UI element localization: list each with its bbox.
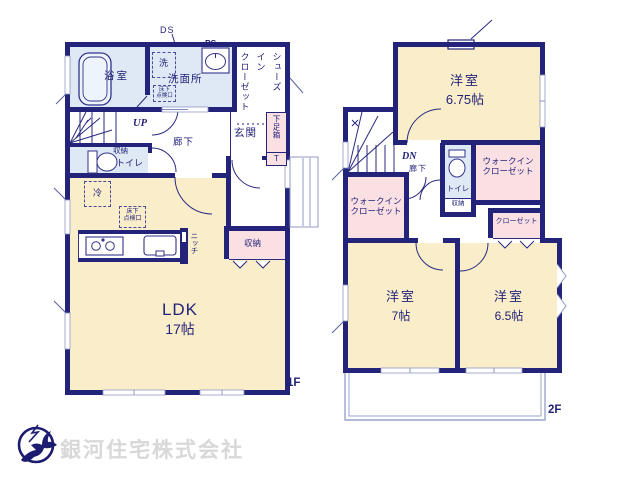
entrance-label: 玄関 bbox=[234, 127, 257, 139]
bedroom-675-label: 洋室 6.75帖 bbox=[425, 72, 505, 110]
corridor-1f-label: 廊下 bbox=[173, 137, 194, 148]
ds-label: DS bbox=[160, 25, 175, 36]
up-label: UP bbox=[133, 118, 147, 130]
wic-left-label: ウォークインクローゼット bbox=[346, 196, 406, 216]
closet-label: クローゼット bbox=[493, 218, 540, 226]
floor1-label: 1F bbox=[287, 377, 300, 391]
niche-label: ニッチ bbox=[189, 232, 198, 255]
fridge-label: 冷 bbox=[93, 188, 102, 199]
hall-storage-label: 収納 bbox=[244, 238, 261, 248]
stairs-1f bbox=[70, 112, 116, 143]
bedroom-65-label: 洋室 6.5帖 bbox=[478, 288, 540, 326]
bedroom-7-label: 洋室 7帖 bbox=[370, 288, 432, 326]
shoe-box: 下足箱 T bbox=[266, 112, 287, 166]
toilet-1f-label: トイレ bbox=[116, 158, 143, 169]
toilet-1f-icon bbox=[88, 151, 97, 173]
room-ldk bbox=[70, 178, 226, 390]
toilet-2f-icon bbox=[449, 150, 465, 157]
toilet-storage-label: 収納 bbox=[113, 147, 128, 156]
washer-label: 洗 bbox=[159, 58, 168, 69]
hatch-label-washroom: 床下点検口 bbox=[154, 87, 175, 100]
wic-right-label: ウォークインクローゼット bbox=[477, 156, 539, 176]
floor-plan-drawing bbox=[0, 0, 640, 480]
ps-label: PS bbox=[205, 38, 216, 48]
washroom-label: 洗面所 bbox=[168, 73, 203, 85]
floor2-label: 2F bbox=[548, 404, 561, 418]
corridor-2f-label: 廊下 bbox=[409, 164, 427, 173]
porch bbox=[290, 157, 318, 227]
room-ldk-east bbox=[226, 260, 285, 390]
toilet-2f-storage-label: 収納 bbox=[445, 200, 471, 208]
dn-label: DN bbox=[402, 151, 416, 163]
hatch-label-ldk: 床下点検口 bbox=[120, 209, 145, 223]
company-logo-icon bbox=[12, 421, 60, 469]
balcony bbox=[345, 373, 545, 420]
company-name: 銀河住宅株式会社 bbox=[60, 434, 244, 464]
bathroom-label: 浴室 bbox=[104, 70, 129, 82]
toilet-2f-label: トイレ bbox=[445, 185, 471, 194]
floor-plan-canvas: DS PS 浴室 洗 洗面所 床下点検口 シューズ イン クローゼット UP 廊… bbox=[0, 0, 640, 480]
stairs-2f bbox=[348, 112, 394, 172]
ldk-label: LDK 17帖 bbox=[135, 300, 225, 340]
